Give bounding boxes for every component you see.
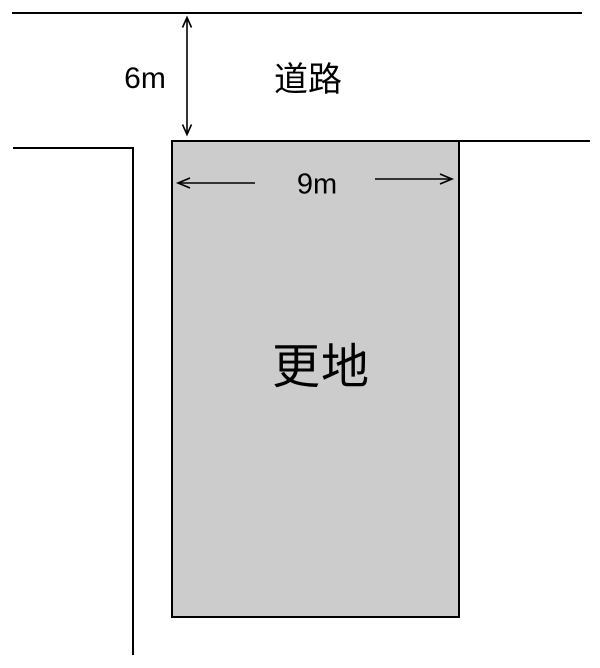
road-name-label: 道路 [274, 63, 342, 97]
adjacent-parcel-boundary-line [13, 148, 133, 655]
diagram-drawing [0, 0, 600, 668]
plot-name-label: 更地 [272, 344, 370, 392]
road-width-dimension-arrow [183, 18, 192, 135]
frontage-length-label: 9m [297, 171, 337, 200]
road-width-label: 6m [124, 64, 166, 94]
land-plot-diagram: 6m 道路 9m 更地 [0, 0, 600, 668]
